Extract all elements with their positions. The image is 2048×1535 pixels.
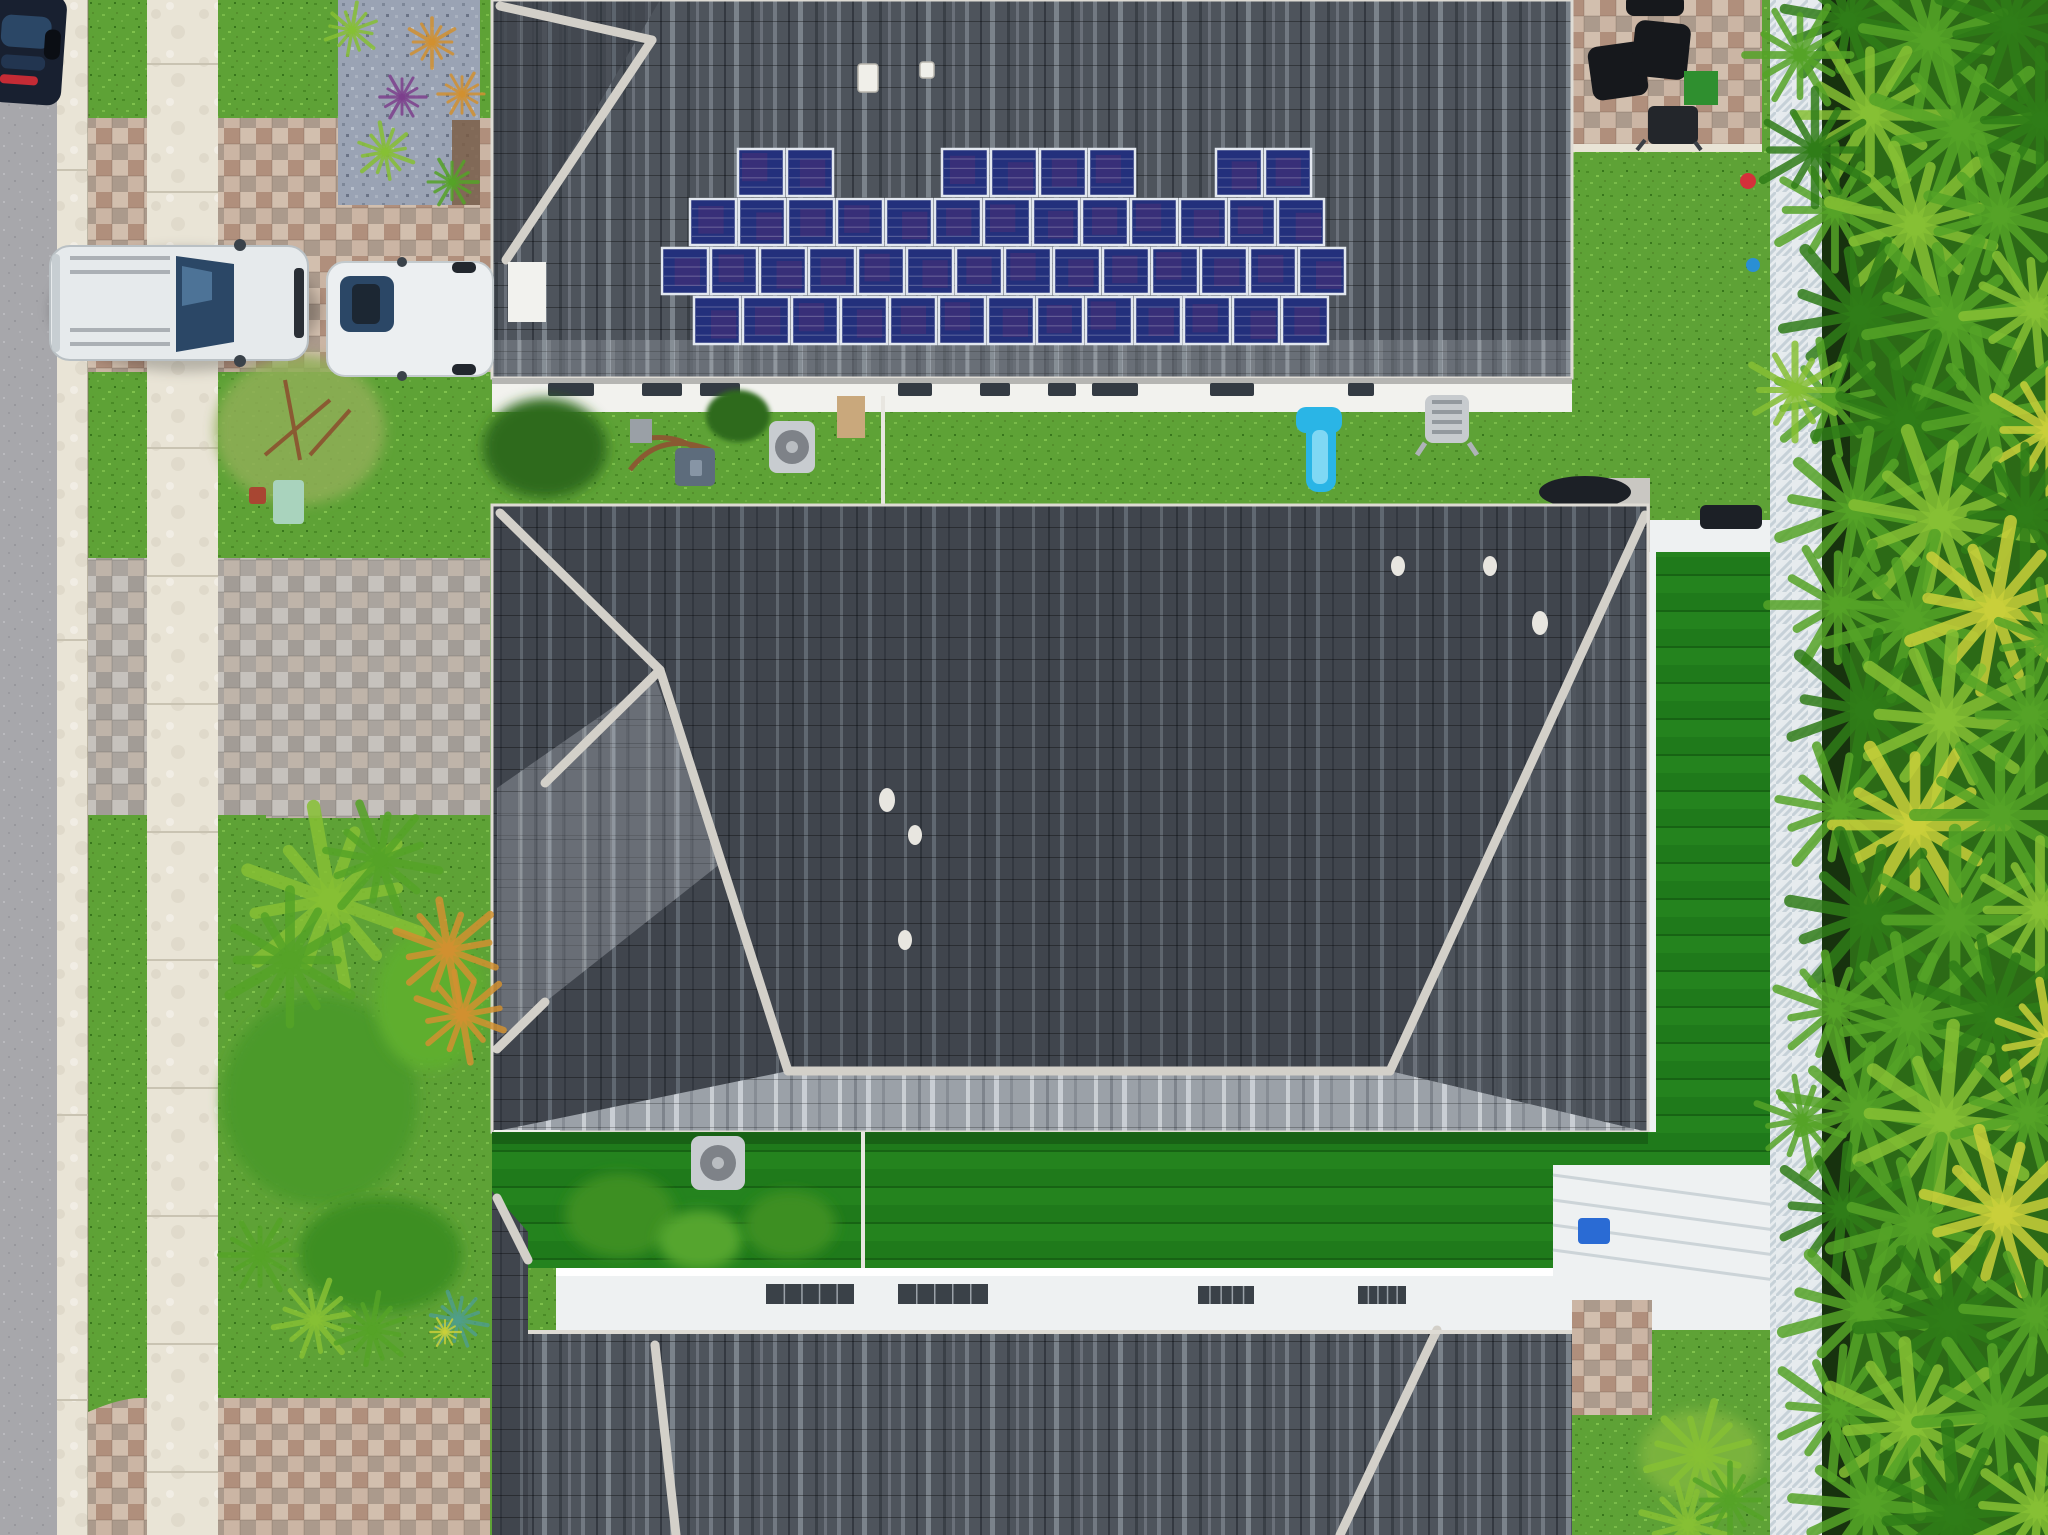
shrub xyxy=(744,1191,836,1259)
bottom-roof xyxy=(528,1330,1572,1535)
aerial-photo xyxy=(0,0,2048,1535)
street-gutter xyxy=(57,0,88,1535)
back-lawn-right xyxy=(1570,0,1772,560)
scene-svg xyxy=(0,0,2048,1535)
red-ball xyxy=(1740,173,1756,189)
utility-cabinet xyxy=(273,480,304,524)
shrub xyxy=(658,1210,742,1270)
green-mat xyxy=(1684,71,1718,105)
red-marker-box xyxy=(249,487,266,504)
sidewalk xyxy=(147,0,218,1535)
car-white xyxy=(327,257,493,381)
rear-patio xyxy=(1560,1330,1652,1415)
patio-border xyxy=(1570,144,1762,152)
bottom-roof-edge xyxy=(528,1330,1572,1334)
hedge xyxy=(483,398,607,498)
roof-shadow xyxy=(492,1132,1648,1144)
electrical-box xyxy=(630,419,652,443)
blue-ball xyxy=(1746,258,1760,272)
hedge-small xyxy=(706,390,770,442)
rear-walkway xyxy=(1572,1300,1652,1334)
garage-wall xyxy=(508,262,546,322)
trash-bin-lid xyxy=(690,460,702,476)
blue-tarp xyxy=(1578,1218,1610,1244)
ac-unit-2 xyxy=(691,1136,745,1190)
car-dark xyxy=(0,0,68,106)
ac-unit xyxy=(769,421,815,473)
eave-weathering xyxy=(492,340,1572,378)
top-house xyxy=(492,0,1572,412)
street-asphalt xyxy=(0,0,57,1535)
black-tarp xyxy=(1539,476,1631,508)
car-suv xyxy=(50,239,320,372)
brick-stack xyxy=(837,396,865,438)
black-items-on-wall xyxy=(1700,505,1762,529)
